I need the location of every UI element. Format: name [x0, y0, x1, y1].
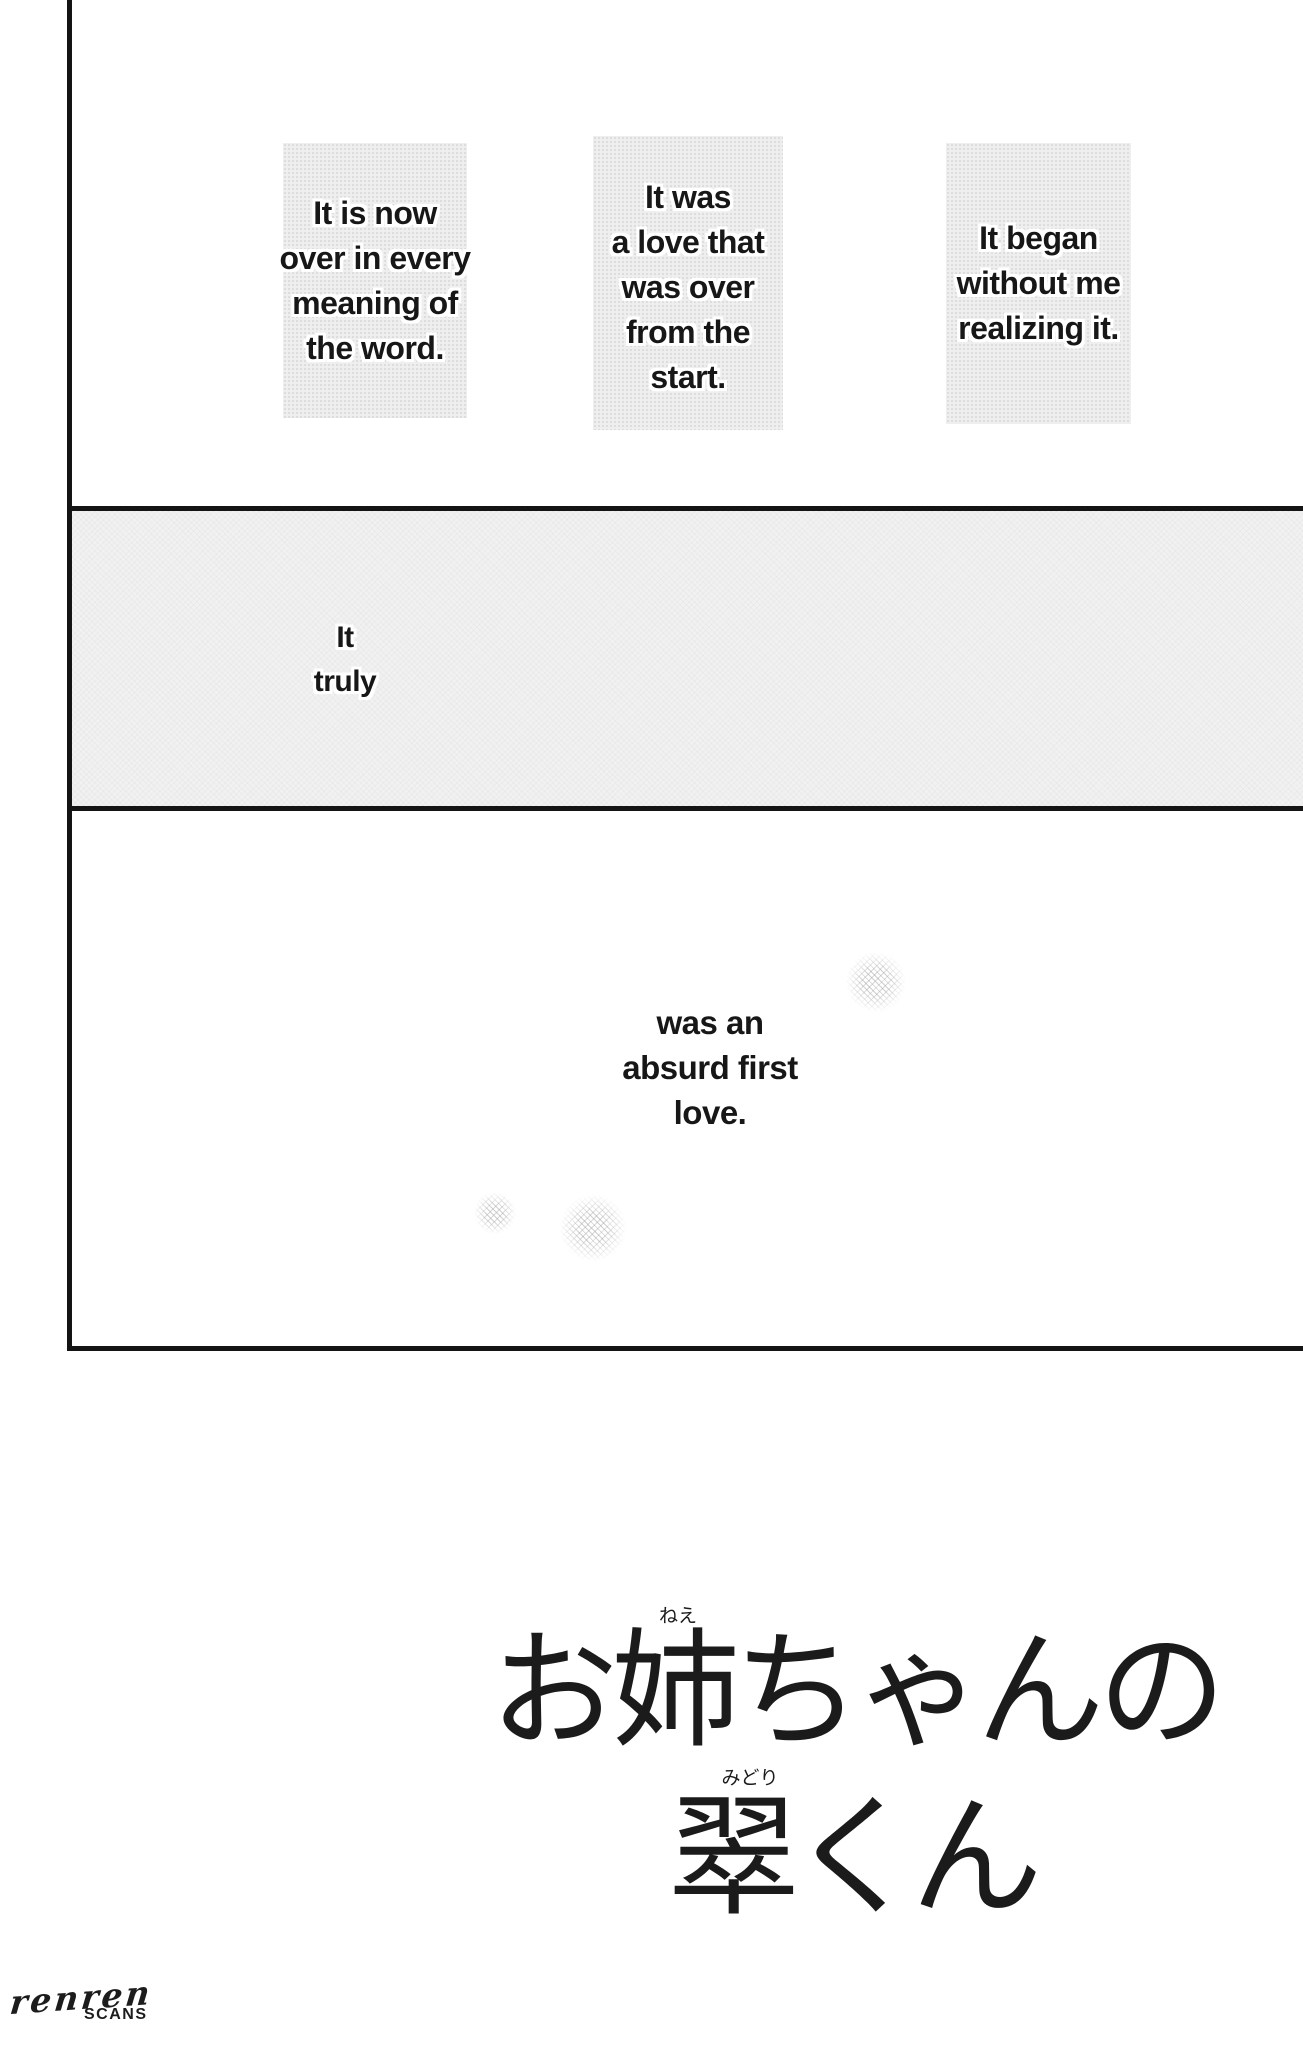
caption-line: love. [674, 1090, 747, 1135]
caption-line: It was [645, 175, 731, 220]
caption-line: It is now [313, 191, 437, 236]
caption-line: It [336, 616, 353, 660]
caption-line: the word. [306, 326, 444, 371]
manga-page: It is now over in every meaning of the w… [0, 0, 1303, 2048]
caption-box-1: It is now over in every meaning of the w… [283, 143, 467, 418]
noise-speckle-large [558, 1193, 628, 1263]
series-title-line-1: お姉ちゃんの [490, 1612, 1210, 1772]
caption-line: realizing it. [958, 306, 1119, 351]
caption-line: over in every [280, 236, 471, 281]
caption-line: meaning of [292, 281, 458, 326]
caption-line: truly [314, 660, 377, 704]
caption-line: without me [957, 261, 1121, 306]
scan-group-label: SCANS [84, 2006, 148, 2024]
caption-line: a love that [612, 220, 765, 265]
caption-middle: It truly [260, 616, 430, 704]
caption-box-3: It began without me realizing it. [946, 143, 1131, 424]
noise-speckle-top-right [845, 950, 907, 1014]
panel-divider-middle [67, 806, 1303, 811]
noise-speckle-small [473, 1191, 517, 1235]
caption-line: absurd first [622, 1045, 798, 1090]
caption-bottom: was an absurd first love. [555, 1000, 865, 1135]
caption-line: It began [979, 216, 1098, 261]
screentone-panel [72, 511, 1303, 806]
caption-line: was an [656, 1000, 763, 1045]
caption-line: was over [622, 265, 755, 310]
series-title-line-2: 翠くん [490, 1776, 1210, 1941]
caption-box-2: It was a love that was over from the sta… [593, 136, 783, 430]
caption-line: from the [626, 310, 750, 355]
panel-divider-bottom [67, 1346, 1303, 1351]
caption-line: start. [650, 355, 725, 400]
